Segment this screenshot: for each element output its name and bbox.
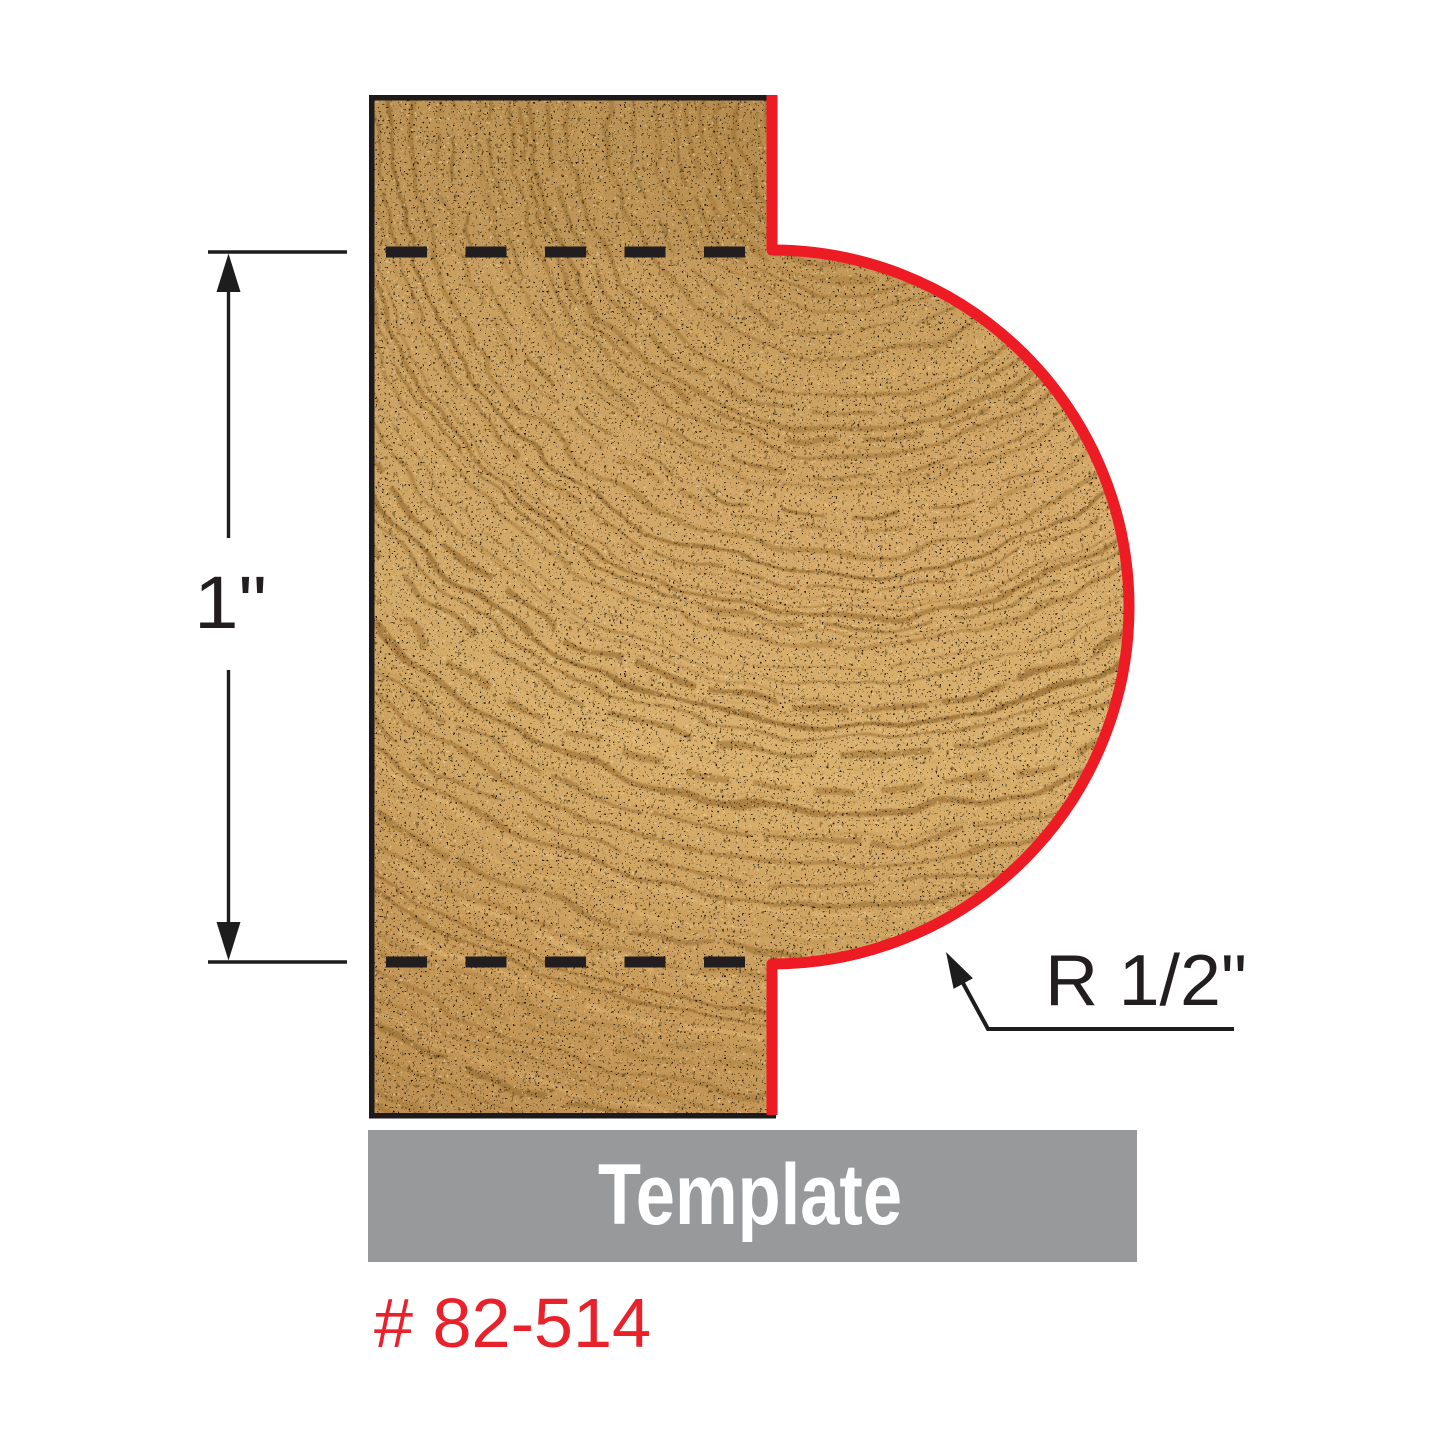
svg-text:1": 1" [194,561,267,644]
svg-text:Template: Template [598,1147,902,1243]
svg-text:R 1/2": R 1/2" [1045,941,1247,1021]
svg-text:# 82-514: # 82-514 [374,1284,651,1362]
